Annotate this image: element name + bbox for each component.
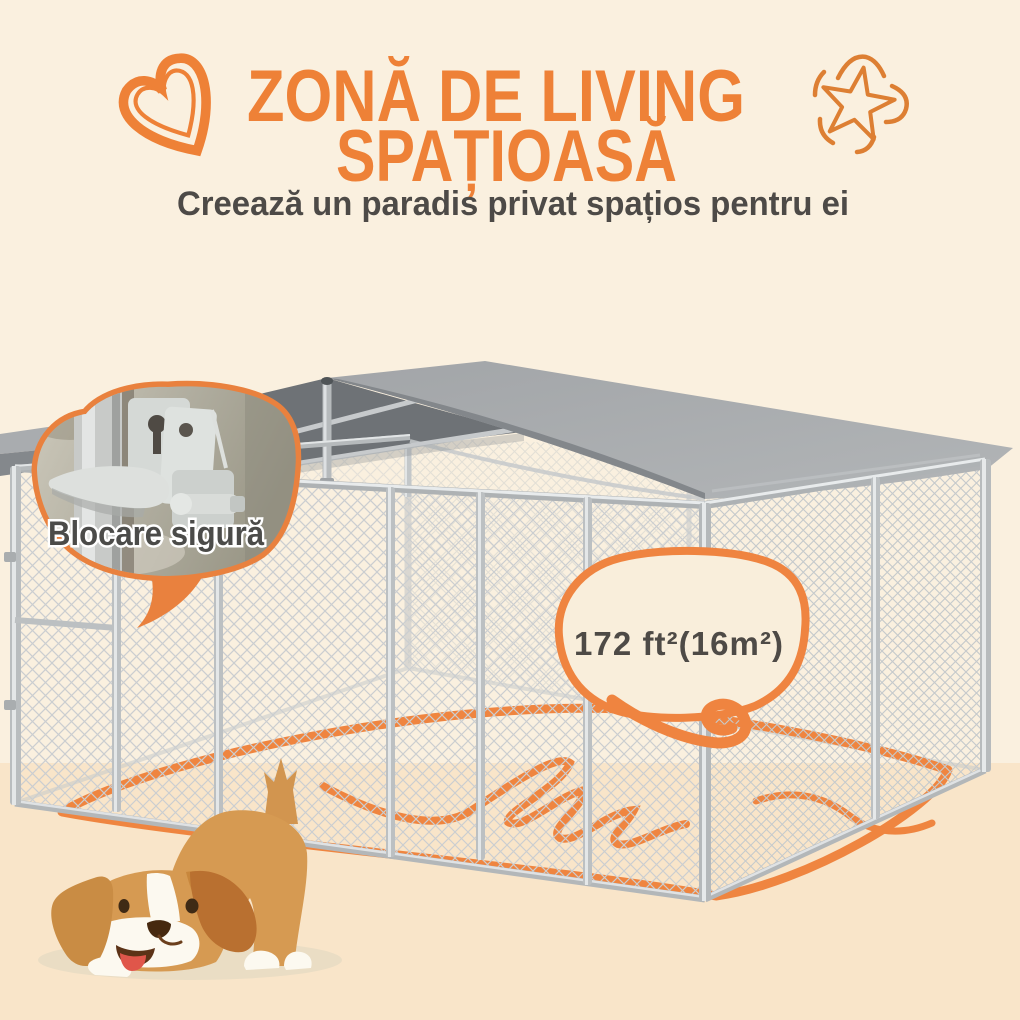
svg-text:Blocare sigură: Blocare sigură xyxy=(48,515,265,553)
svg-text:172 ft²(16m²): 172 ft²(16m²) xyxy=(574,625,783,662)
svg-text:Creează un paradis privat spaț: Creează un paradis privat spațios pentru… xyxy=(177,185,849,223)
